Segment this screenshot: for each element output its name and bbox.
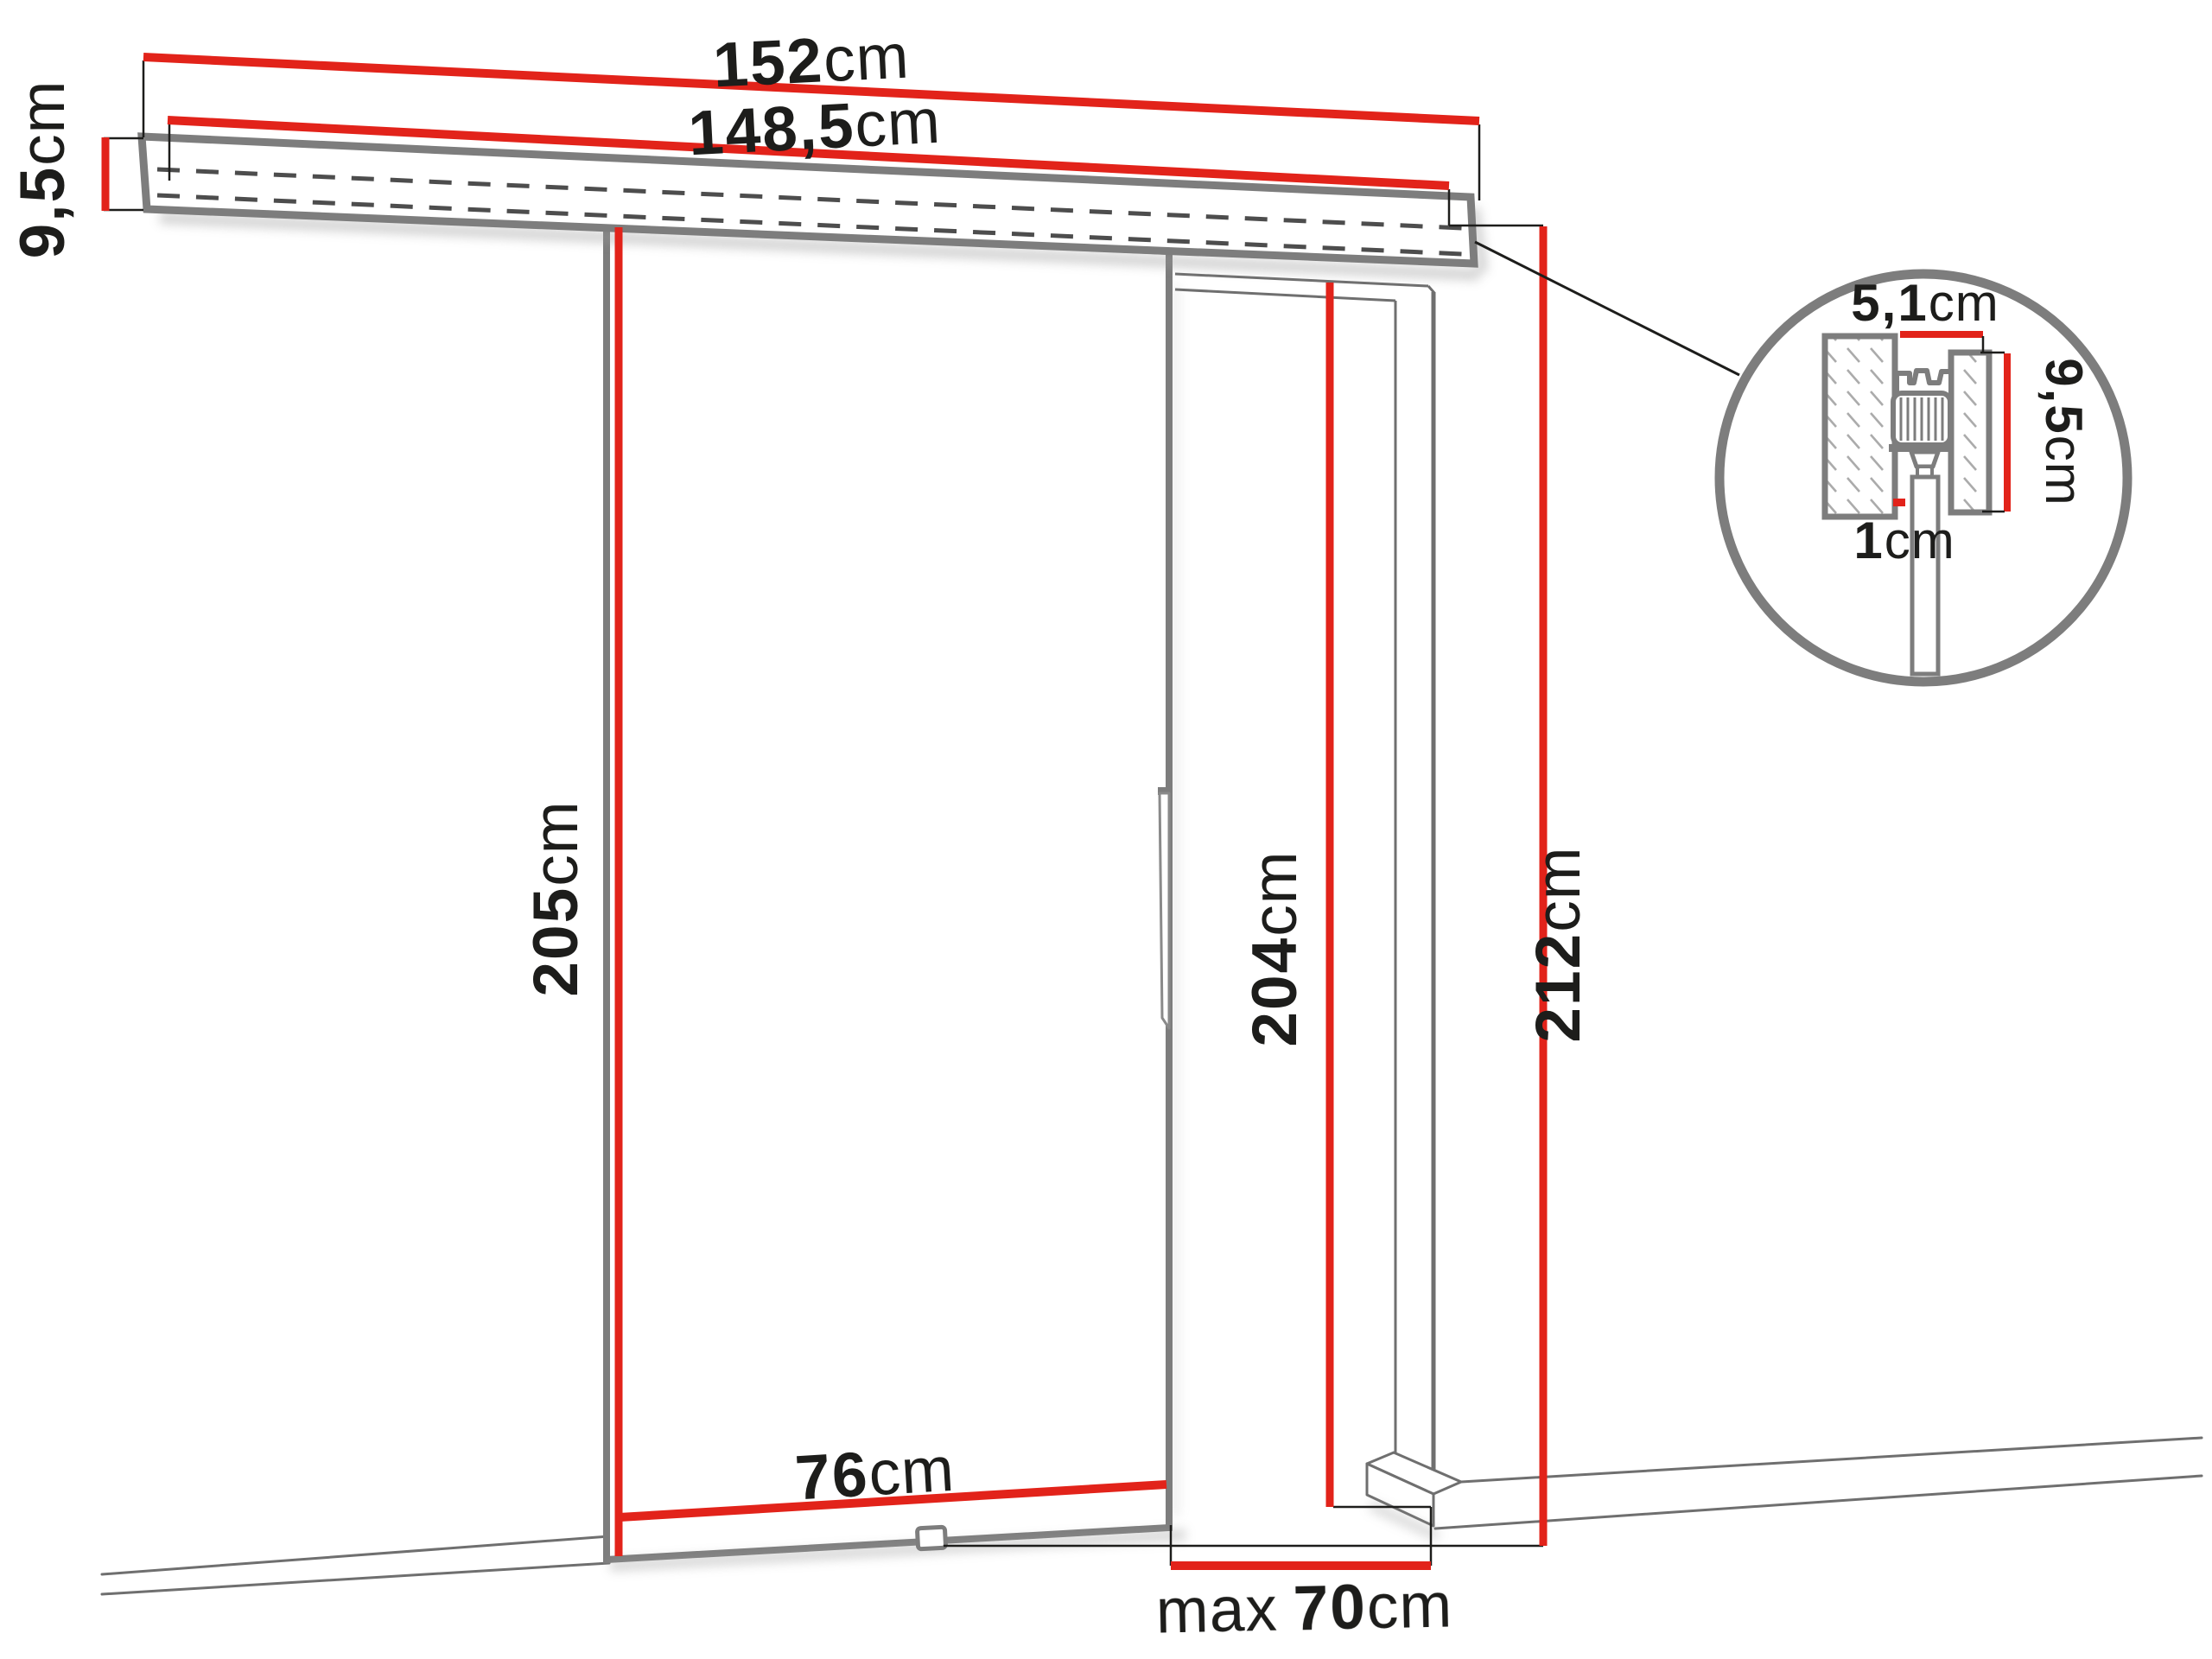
label-door-height: 205cm xyxy=(521,800,591,996)
label-detail-track-height: 9,5cm xyxy=(2035,358,2093,505)
gap-marker-1cm xyxy=(1893,499,1905,506)
roller-ribs xyxy=(1901,397,1942,441)
wall-section-left xyxy=(1825,336,1895,517)
label-door-width: 76cm xyxy=(793,1434,957,1514)
label-track-height: 9,5cm xyxy=(8,80,78,259)
label-opening-height: 204cm xyxy=(1240,850,1310,1046)
label-detail-track-width: 5,1cm xyxy=(1851,274,1999,332)
diagram-canvas: 5,1cm 9,5cm 1cm 152cm 148,5cm 9,5cm 205c… xyxy=(0,0,2212,1659)
hanger-neck xyxy=(1911,452,1938,467)
detail-circle: 5,1cm 9,5cm 1cm xyxy=(1719,274,2127,682)
label-overall-height: 212cm xyxy=(1523,846,1593,1042)
label-max-opening: max70cm xyxy=(1155,1570,1453,1646)
sliding-door-panel xyxy=(607,226,1169,1560)
wall-section-right xyxy=(1951,353,1989,512)
label-detail-wall-gap: 1cm xyxy=(1853,512,1955,569)
floor-guide xyxy=(917,1527,945,1549)
door-section-strip xyxy=(1912,477,1938,674)
diagram-page: 5,1cm 9,5cm 1cm 152cm 148,5cm 9,5cm 205c… xyxy=(0,0,2212,1659)
label-track-effective: 148,5cm xyxy=(687,86,943,169)
